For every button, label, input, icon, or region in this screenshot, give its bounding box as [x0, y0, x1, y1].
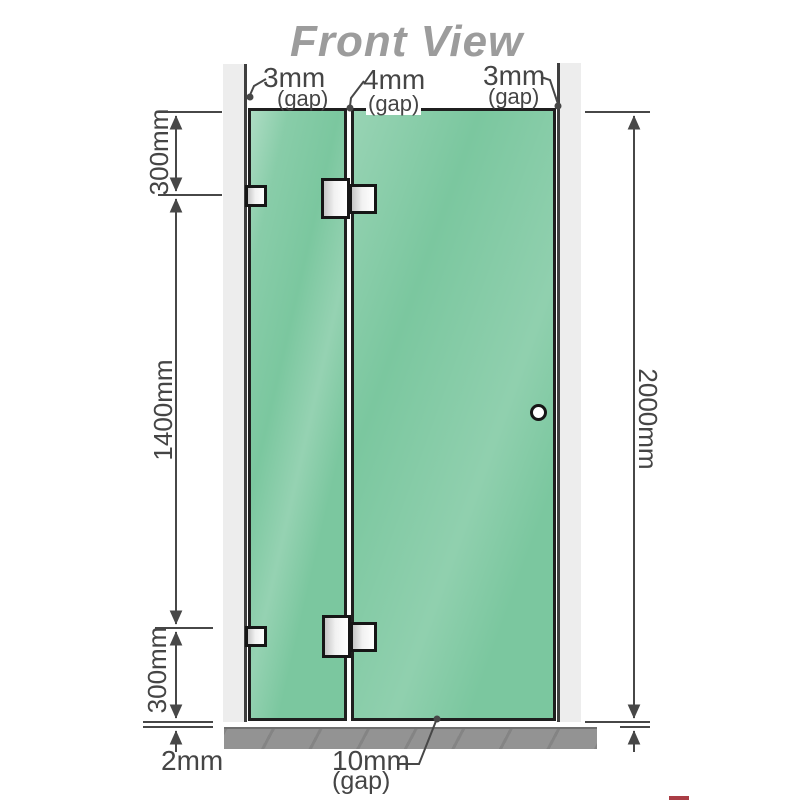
gap-label-middle-value: 4mm [363, 66, 425, 94]
door-glass-panel [351, 108, 556, 721]
hinge-bottom-icon [350, 622, 377, 652]
dim-label-left-middle: 1400mm [150, 359, 176, 460]
right-wall [557, 63, 581, 722]
wall-bracket-bottom-icon [245, 626, 267, 647]
door-handle-icon [530, 404, 547, 421]
left-wall [223, 64, 247, 722]
gap-label-right-note: (gap) [488, 86, 539, 108]
dim-label-right-height: 2000mm [635, 368, 661, 469]
hinge-top-icon [321, 178, 350, 219]
red-mark [669, 796, 689, 800]
hinge-bottom-icon [322, 615, 351, 658]
gap-label-bottom-note: (gap) [332, 769, 390, 794]
wall-bracket-top-icon [245, 185, 267, 207]
dim-label-left-bottom: 300mm [144, 627, 170, 714]
hinge-top-icon [349, 184, 377, 214]
gap-label-middle-note: (gap) [366, 93, 421, 115]
dim-label-floor-gap: 2mm [161, 747, 223, 775]
floor-base [224, 727, 597, 749]
dim-label-left-top: 300mm [146, 109, 172, 196]
gap-label-left-note: (gap) [277, 88, 328, 110]
diagram-title: Front View [290, 20, 523, 64]
front-view-diagram: Front View 3mm (gap) 4mm (gap) 3mm (gap)… [0, 0, 800, 800]
